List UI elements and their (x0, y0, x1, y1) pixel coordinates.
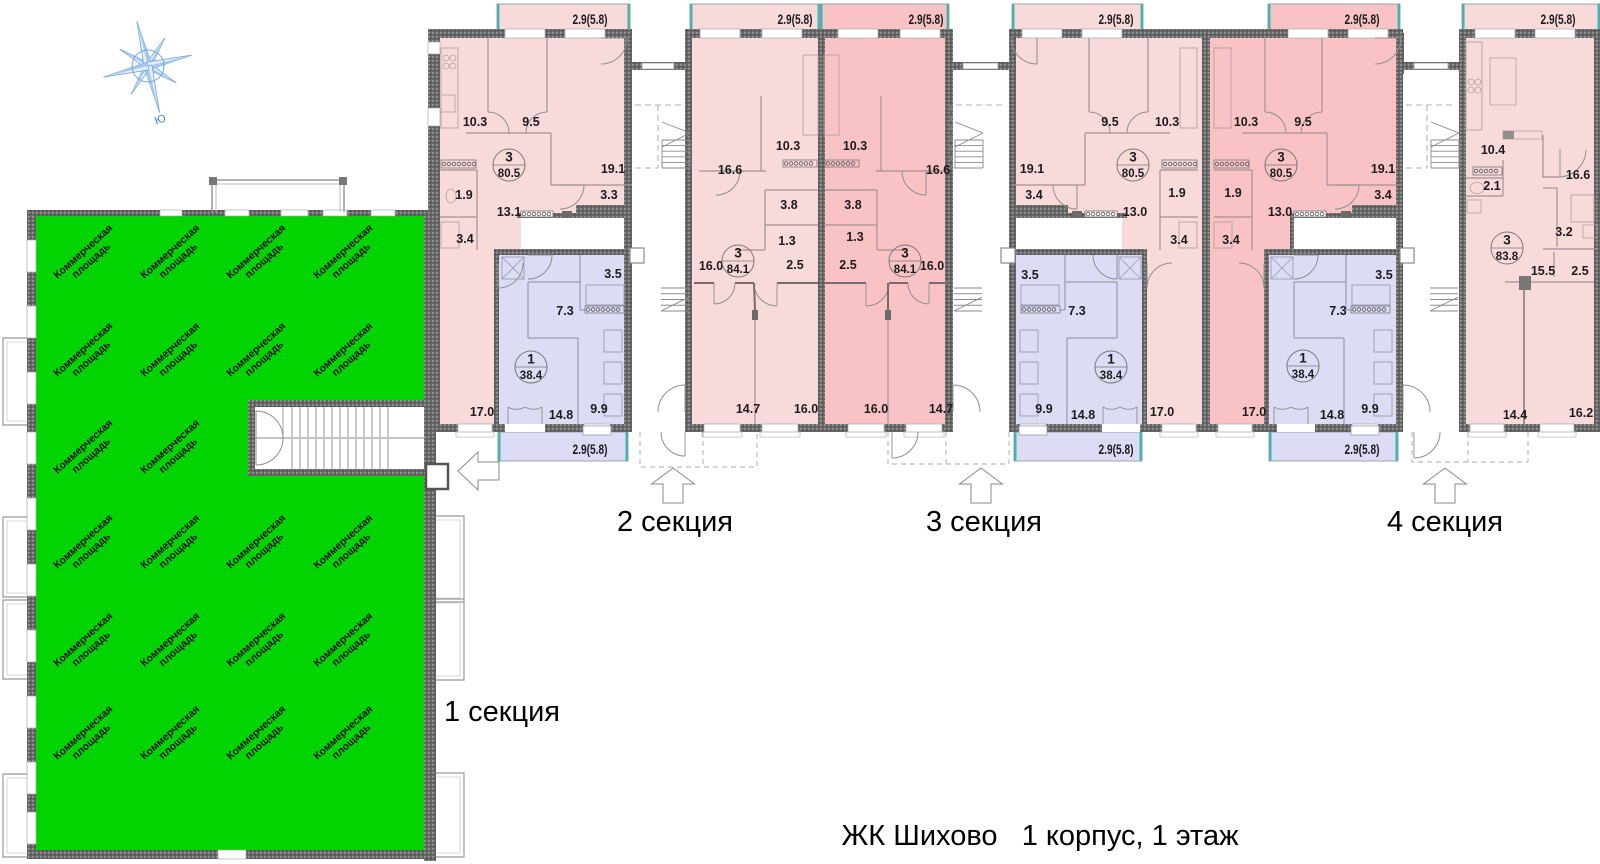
svg-text:14.8: 14.8 (1071, 408, 1095, 422)
svg-text:2.9(5.8): 2.9(5.8) (573, 441, 608, 457)
svg-text:4 секция: 4 секция (1387, 506, 1503, 538)
svg-text:1: 1 (527, 352, 535, 367)
svg-text:1.3: 1.3 (778, 234, 795, 248)
svg-text:2.9(5.8): 2.9(5.8) (1345, 11, 1380, 27)
svg-text:2.1: 2.1 (1483, 179, 1500, 193)
svg-text:2.9(5.8): 2.9(5.8) (1099, 11, 1134, 27)
svg-text:19.1: 19.1 (1020, 162, 1044, 176)
svg-text:16.6: 16.6 (718, 163, 742, 177)
svg-text:3.2: 3.2 (1555, 225, 1572, 239)
svg-text:3.4: 3.4 (1025, 188, 1042, 202)
svg-text:19.1: 19.1 (601, 162, 625, 176)
svg-text:14.7: 14.7 (929, 402, 953, 416)
svg-text:9.5: 9.5 (522, 115, 539, 129)
svg-text:80.5: 80.5 (1270, 168, 1293, 180)
svg-text:38.4: 38.4 (1292, 369, 1315, 381)
svg-text:19.1: 19.1 (1371, 162, 1395, 176)
svg-text:9.9: 9.9 (590, 402, 607, 416)
svg-text:2.9(5.8): 2.9(5.8) (573, 11, 608, 27)
svg-text:17.0: 17.0 (470, 405, 494, 419)
svg-text:13.1: 13.1 (497, 205, 521, 219)
svg-text:3.4: 3.4 (1374, 188, 1391, 202)
svg-text:7.3: 7.3 (1068, 304, 1085, 318)
svg-text:3.5: 3.5 (604, 267, 621, 281)
svg-text:17.0: 17.0 (1150, 405, 1174, 419)
svg-text:10.3: 10.3 (776, 139, 800, 153)
svg-text:14.7: 14.7 (736, 402, 760, 416)
svg-text:3: 3 (505, 150, 513, 165)
svg-text:2.5: 2.5 (786, 258, 803, 272)
svg-text:84.1: 84.1 (727, 264, 750, 276)
svg-text:14.4: 14.4 (1503, 408, 1527, 422)
svg-text:2.5: 2.5 (839, 258, 856, 272)
svg-text:2.5: 2.5 (1571, 264, 1588, 278)
svg-text:10.3: 10.3 (1234, 115, 1258, 129)
svg-text:10.3: 10.3 (843, 139, 867, 153)
svg-text:14.8: 14.8 (549, 408, 573, 422)
svg-text:83.8: 83.8 (1496, 251, 1519, 263)
svg-text:13.0: 13.0 (1123, 205, 1147, 219)
svg-text:2.9(5.8): 2.9(5.8) (778, 11, 813, 27)
svg-text:84.1: 84.1 (894, 264, 917, 276)
svg-text:16.0: 16.0 (920, 259, 944, 273)
svg-text:38.4: 38.4 (1100, 370, 1123, 382)
svg-text:80.5: 80.5 (498, 168, 521, 180)
svg-text:2 секция: 2 секция (617, 506, 733, 538)
svg-text:2.9(5.8): 2.9(5.8) (909, 11, 944, 27)
svg-text:3.4: 3.4 (1170, 233, 1187, 247)
svg-text:1.9: 1.9 (1168, 186, 1185, 200)
svg-text:38.4: 38.4 (520, 370, 543, 382)
svg-text:10.4: 10.4 (1481, 143, 1505, 157)
svg-text:10.3: 10.3 (463, 115, 487, 129)
svg-text:17.0: 17.0 (1242, 405, 1266, 419)
svg-text:1.3: 1.3 (846, 230, 863, 244)
svg-text:16.0: 16.0 (699, 259, 723, 273)
svg-text:3.4: 3.4 (456, 232, 473, 246)
svg-text:1.9: 1.9 (1224, 186, 1241, 200)
svg-text:7.3: 7.3 (556, 304, 573, 318)
svg-text:3.8: 3.8 (780, 198, 797, 212)
svg-text:1: 1 (1107, 352, 1115, 367)
svg-text:3: 3 (734, 246, 742, 261)
svg-text:3.4: 3.4 (1222, 233, 1239, 247)
svg-text:16.0: 16.0 (794, 402, 818, 416)
svg-text:16.6: 16.6 (926, 163, 950, 177)
svg-text:1: 1 (1299, 351, 1307, 366)
svg-text:3: 3 (1129, 150, 1137, 165)
svg-text:3: 3 (1503, 233, 1511, 248)
svg-text:1.9: 1.9 (455, 188, 472, 202)
svg-text:13.0: 13.0 (1268, 205, 1292, 219)
svg-text:9.9: 9.9 (1361, 402, 1378, 416)
svg-text:3: 3 (901, 246, 909, 261)
svg-text:7.3: 7.3 (1329, 304, 1346, 318)
svg-text:3.5: 3.5 (1375, 268, 1392, 282)
svg-text:16.6: 16.6 (1566, 168, 1590, 182)
svg-text:3 секция: 3 секция (926, 506, 1042, 538)
svg-text:3.8: 3.8 (844, 198, 861, 212)
svg-text:2.9(5.8): 2.9(5.8) (1541, 11, 1576, 27)
svg-text:3: 3 (1277, 150, 1285, 165)
svg-text:14.8: 14.8 (1320, 408, 1344, 422)
svg-text:80.5: 80.5 (1122, 168, 1145, 180)
svg-text:3.5: 3.5 (1021, 268, 1038, 282)
svg-text:1 секция: 1 секция (444, 696, 560, 728)
svg-text:16.2: 16.2 (1569, 406, 1593, 420)
svg-text:9.9: 9.9 (1035, 402, 1052, 416)
svg-text:15.5: 15.5 (1531, 264, 1555, 278)
svg-text:2.9(5.8): 2.9(5.8) (1099, 441, 1134, 457)
svg-text:16.0: 16.0 (864, 402, 888, 416)
svg-text:3.3: 3.3 (600, 188, 617, 202)
svg-text:10.3: 10.3 (1155, 115, 1179, 129)
svg-text:2.9(5.8): 2.9(5.8) (1345, 441, 1380, 457)
svg-text:ЖК Шихово 1 корпус, 1 этаж: ЖК Шихово 1 корпус, 1 этаж (842, 820, 1240, 852)
svg-text:9.5: 9.5 (1294, 115, 1311, 129)
svg-text:9.5: 9.5 (1101, 115, 1118, 129)
